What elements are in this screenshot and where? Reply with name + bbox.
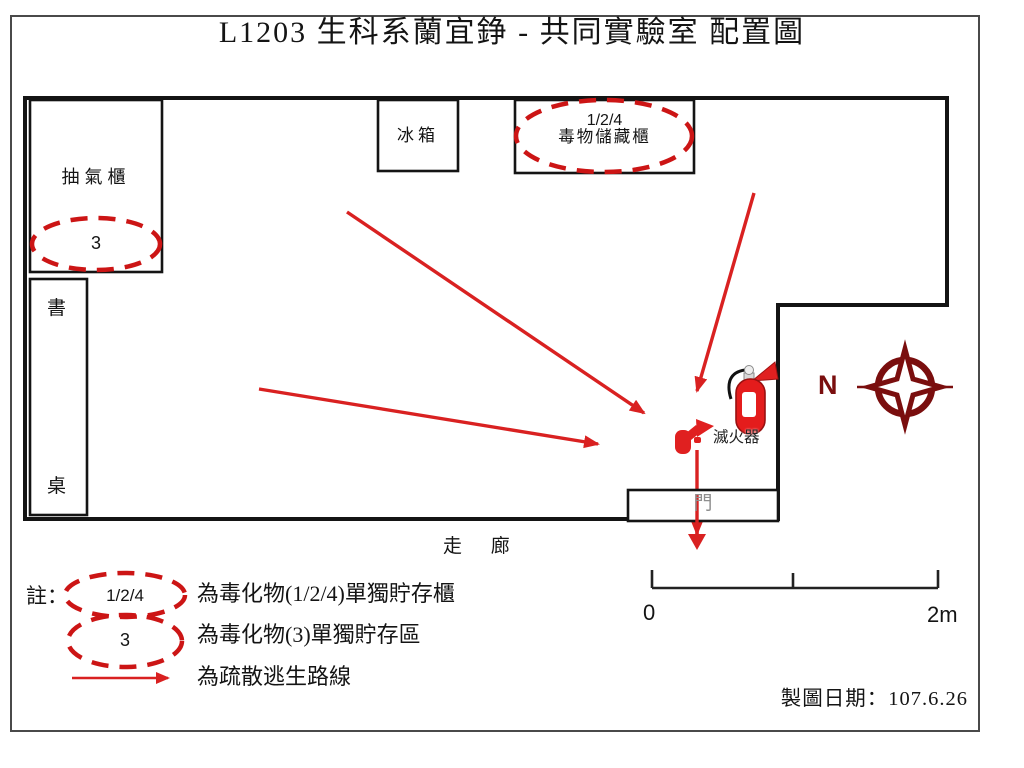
floor-plan-page: L1203 生科系蘭宜錚 - 共同實驗室 配置圖 [0,0,1024,768]
corridor-label: 走 廊 [443,536,522,558]
escape-route-arrow-3 [697,193,754,391]
toxic-cabinet-label: 毒物儲藏櫃 [515,128,694,147]
door-label: 門 [628,493,778,515]
extinguisher-label: 滅火器 [713,429,760,447]
legend-item-label-2: 為毒化物(3)單獨貯存區 [197,622,421,647]
floor-plan-drawing [0,0,1024,768]
legend-item-label-1: 為毒化物(1/2/4)單獨貯存櫃 [197,581,455,606]
date-label: 製圖日期：107.6.26 [700,688,968,712]
fridge-label: 冰箱 [378,126,458,146]
scale-start-label: 0 [643,600,655,625]
small-extinguisher-icon [675,419,714,454]
legend-symbol-text-3: 3 [65,630,185,651]
escape-route-arrow-1 [347,212,644,413]
legend-note-label: 註： [26,584,68,608]
escape-arrow-tip [688,534,706,550]
legend-symbol-text-124: 1/2/4 [65,586,185,606]
desk-label-top: 書 [47,298,66,320]
fume-hood-zone-code: 3 [30,233,162,254]
compass-icon [857,349,953,425]
compass-north-label: N [818,370,838,401]
fire-extinguisher-icon [729,362,778,434]
desk-label-bottom: 桌 [47,476,66,498]
escape-route-arrow-2 [259,389,598,444]
scale-bar [652,570,938,588]
legend-item-label-3: 為疏散逃生路線 [197,664,351,689]
scale-end-label: 2m [927,602,958,627]
fume-hood-label: 抽氣櫃 [30,167,162,188]
